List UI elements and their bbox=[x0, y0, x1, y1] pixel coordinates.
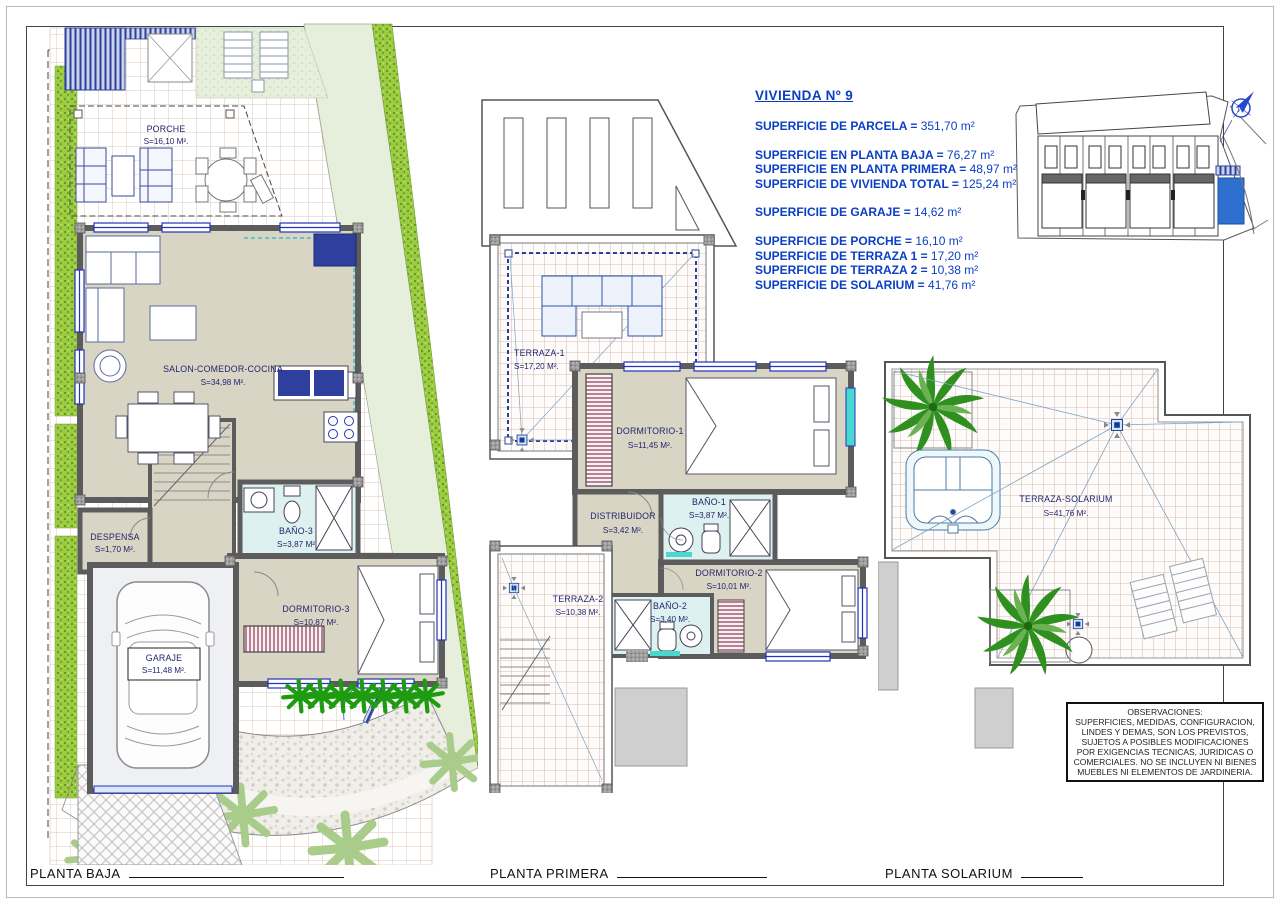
garage-door-icon bbox=[94, 786, 232, 793]
room-area-dormitorio3: S=10,87 M². bbox=[294, 618, 339, 627]
area-line: SUPERFICIE EN PLANTA PRIMERA = 48,97 m² bbox=[755, 162, 1035, 177]
page-title: VIVIENDA Nº 9 bbox=[755, 88, 1035, 103]
area-line: SUPERFICIE DE TERRAZA 1 = 17,20 m² bbox=[755, 249, 1035, 264]
annex-roof bbox=[878, 562, 898, 690]
room-area-garaje: S=11,48 M². bbox=[142, 666, 186, 675]
sill-accent bbox=[666, 552, 692, 557]
planta-baja-drawing: PORCHE S=16,10 M². bbox=[28, 20, 478, 865]
room-area-porche: S=16,10 M². bbox=[144, 137, 189, 146]
porche-sofa-icon bbox=[76, 148, 172, 202]
room-label-salon: SALON-COMEDOR-COCINA bbox=[163, 364, 283, 374]
bed-icon bbox=[686, 378, 836, 474]
room-area-bano1: S=3,87 M². bbox=[689, 511, 729, 520]
room-area-dormitorio1: S=11,45 M². bbox=[628, 441, 672, 450]
area-line: SUPERFICIE DE VIVIENDA TOTAL = 125,24 m² bbox=[755, 177, 1035, 192]
hedge-left-3 bbox=[55, 536, 77, 798]
highlighted-plot bbox=[1218, 178, 1244, 224]
area-line: SUPERFICIE DE SOLARIUM = 41,76 m² bbox=[755, 278, 1035, 293]
lower-roof bbox=[615, 688, 687, 766]
room-label-porche: PORCHE bbox=[147, 124, 186, 134]
room-label-terraza2: TERRAZA-2 bbox=[553, 594, 604, 604]
porche-post bbox=[74, 110, 82, 118]
plant-icon bbox=[423, 736, 478, 789]
room-area-terraza2: S=10,38 M². bbox=[556, 608, 601, 617]
stove-icon bbox=[324, 412, 358, 442]
areas-summary: VIVIENDA Nº 9 SUPERFICIE DE PARCELA = 35… bbox=[755, 88, 1035, 306]
bed-icon bbox=[358, 566, 438, 674]
footer-label-planta-primera: PLANTA PRIMERA bbox=[490, 864, 767, 881]
window-icon bbox=[846, 388, 855, 446]
room-area-despensa: S=1,70 M². bbox=[95, 545, 135, 554]
jacuzzi-icon bbox=[906, 450, 1000, 533]
room-label-despensa: DESPENSA bbox=[90, 532, 140, 542]
observaciones-body: SUPERFICIES, MEDIDAS, CONFIGURACION, LIN… bbox=[1072, 717, 1258, 777]
room-area-bano2: S=3,40 M². bbox=[650, 615, 690, 624]
footer-label-planta-baja: PLANTA BAJA bbox=[30, 864, 344, 881]
sill-accent bbox=[650, 651, 680, 656]
room-area-bano3: S=3,87 M² bbox=[277, 540, 315, 549]
stair-flight-icon bbox=[244, 626, 324, 652]
room-area-salon: S=34,98 M². bbox=[201, 378, 246, 387]
mat-icon bbox=[626, 650, 648, 662]
room-label-garaje: GARAJE bbox=[146, 653, 182, 663]
closet-icon bbox=[718, 600, 744, 652]
room-label-dormitorio1: DORMITORIO-1 bbox=[616, 426, 683, 436]
north-label: N bbox=[1236, 104, 1245, 115]
closet-icon bbox=[586, 374, 612, 486]
drawing-sheet: PORCHE S=16,10 M². bbox=[0, 0, 1280, 904]
room-label-bano1: BAÑO-1 bbox=[692, 497, 726, 507]
footer-label-planta-solarium: PLANTA SOLARIUM bbox=[885, 864, 1083, 881]
hedge-left-2 bbox=[55, 424, 77, 528]
site-plan-map: N bbox=[1008, 78, 1270, 250]
area-line: SUPERFICIE EN PLANTA BAJA = 76,27 m² bbox=[755, 148, 1035, 163]
room-label-terraza1: TERRAZA-1 bbox=[514, 348, 565, 358]
area-line: SUPERFICIE DE PORCHE = 16,10 m² bbox=[755, 234, 1035, 249]
observaciones-title: OBSERVACIONES: bbox=[1072, 707, 1258, 717]
room-label-distribuidor: DISTRIBUIDOR bbox=[590, 511, 655, 521]
room-label-bano3: BAÑO-3 bbox=[279, 526, 313, 536]
highlighted-plot-roof bbox=[1216, 166, 1240, 175]
annex-roof bbox=[975, 688, 1013, 748]
bed-icon bbox=[766, 570, 858, 650]
room-label-bano2: BAÑO-2 bbox=[653, 601, 687, 611]
room-area-dormitorio2: S=10,01 M². bbox=[707, 582, 752, 591]
area-line: SUPERFICIE DE PARCELA = 351,70 m² bbox=[755, 119, 1035, 134]
observaciones-box: OBSERVACIONES: SUPERFICIES, MEDIDAS, CON… bbox=[1066, 702, 1264, 782]
room-area-terraza-solarium: S=41,76 M². bbox=[1044, 509, 1089, 518]
pergola-roof-icon bbox=[65, 28, 125, 90]
fridge-icon bbox=[314, 234, 356, 266]
room-label-terraza-solarium: TERRAZA-SOLARIUM bbox=[1019, 494, 1112, 504]
room-area-distribuidor: S=3,42 M². bbox=[603, 526, 643, 535]
area-line: SUPERFICIE DE TERRAZA 2 = 10,38 m² bbox=[755, 263, 1035, 278]
room-area-terraza1: S=17,20 M². bbox=[514, 362, 559, 371]
skylight-icon bbox=[148, 34, 192, 82]
porche-post bbox=[226, 110, 234, 118]
room-label-dormitorio2: DORMITORIO-2 bbox=[695, 568, 762, 578]
room-label-dormitorio3: DORMITORIO-3 bbox=[282, 604, 349, 614]
area-line: SUPERFICIE DE GARAJE = 14,62 m² bbox=[755, 205, 1035, 220]
kitchen-island-icon bbox=[274, 366, 348, 400]
